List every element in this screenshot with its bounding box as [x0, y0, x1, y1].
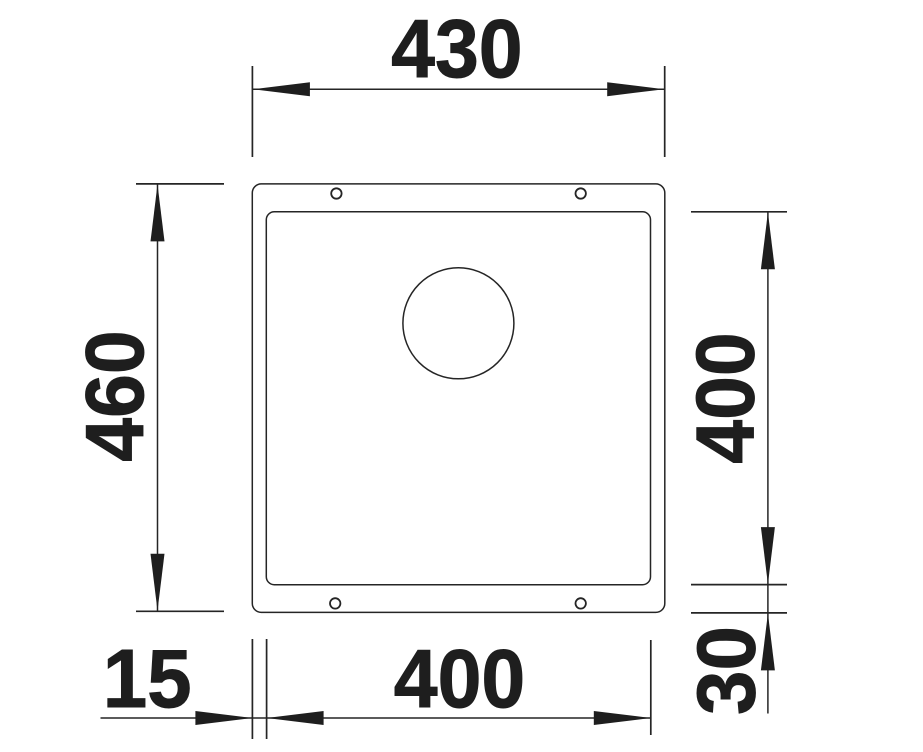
- svg-text:460: 460: [68, 330, 161, 462]
- svg-text:400: 400: [394, 632, 526, 725]
- svg-text:430: 430: [391, 2, 523, 95]
- svg-text:30: 30: [680, 626, 773, 715]
- svg-text:400: 400: [679, 332, 772, 464]
- svg-text:15: 15: [103, 632, 192, 725]
